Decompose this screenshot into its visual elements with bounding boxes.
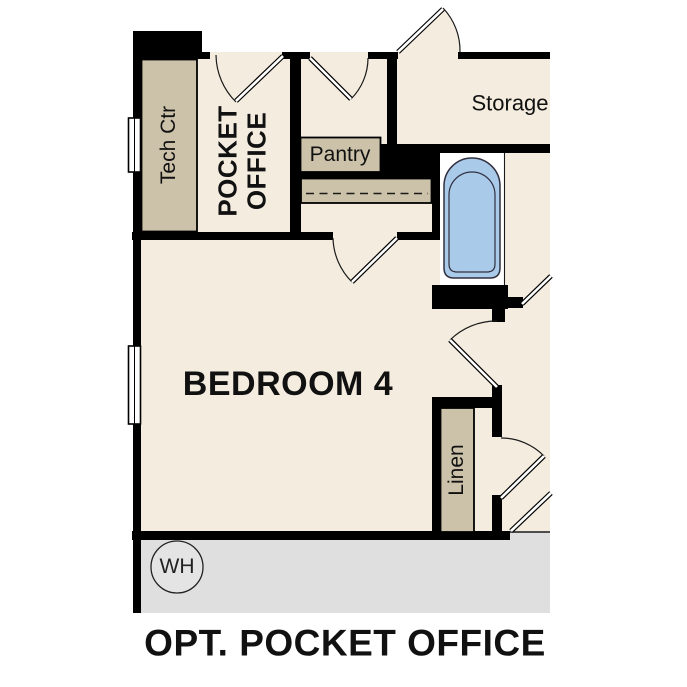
wall-bath-corner — [381, 144, 440, 178]
wall-bath-left — [432, 178, 440, 240]
wall-door-stub-a — [492, 309, 505, 322]
label-pantry: Pantry — [310, 144, 371, 166]
wall-top-left-chunk — [133, 31, 202, 59]
wall-top — [202, 52, 210, 59]
wall-bedroom-top — [132, 232, 333, 240]
wall-storage-left — [387, 52, 397, 147]
counter-strip — [301, 179, 432, 204]
wall-linen-left — [432, 397, 440, 540]
wall-pocket-office-right — [290, 52, 301, 240]
wall-top — [458, 52, 550, 59]
wall-tub-bottom — [432, 285, 508, 309]
label-tech-ctr: Tech Ctr — [158, 106, 180, 184]
plan-caption: OPT. POCKET OFFICE — [144, 625, 546, 664]
label-storage: Storage — [471, 91, 548, 114]
floor-plan-drawing — [0, 0, 687, 687]
label-linen: Linen — [446, 444, 468, 495]
wall-bedroom-top-right — [397, 232, 440, 240]
wall-storage-bottom — [440, 144, 550, 153]
garage-floor-right — [510, 532, 550, 613]
wall-door-stub-b — [492, 385, 502, 437]
bathtub — [444, 158, 500, 278]
wall-linen-top — [432, 397, 495, 408]
label-bedroom-4: BEDROOM 4 — [183, 367, 393, 403]
label-pocket-office: POCKET OFFICE — [213, 105, 270, 216]
label-water-heater: WH — [160, 556, 195, 578]
floor-plan-canvas: Tech Ctr POCKET OFFICE Pantry Storage BE… — [0, 0, 687, 687]
